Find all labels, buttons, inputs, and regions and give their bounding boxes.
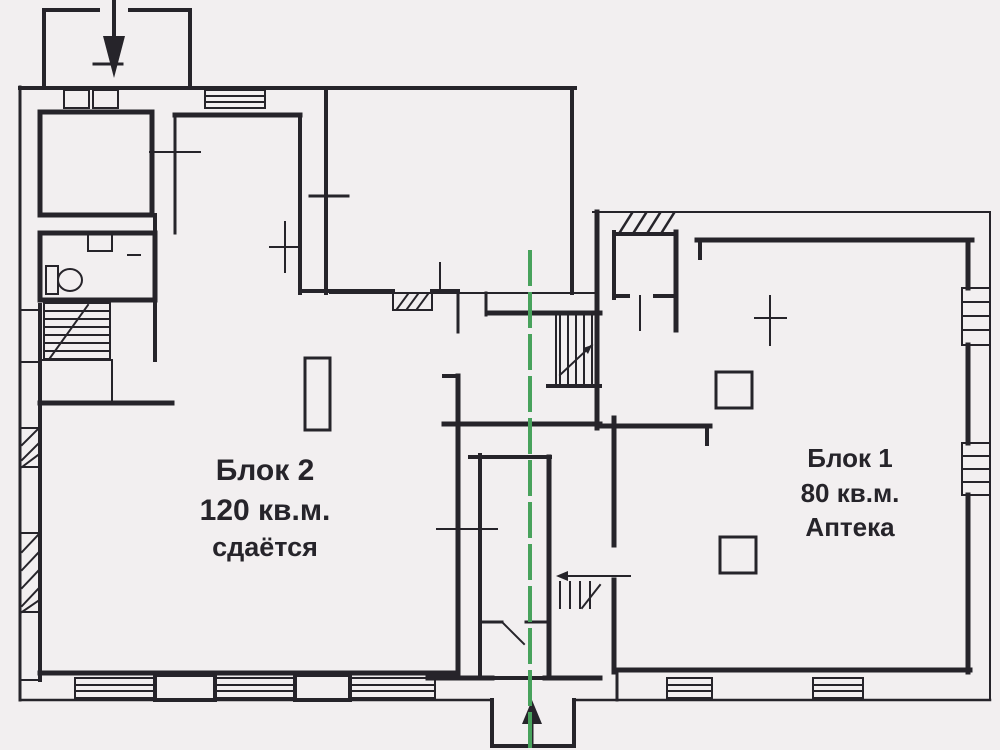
staircase-central-lower [556,571,630,608]
block-1-bottom-windows [667,678,863,698]
central-core [444,424,600,678]
block-1-use: Аптека [750,511,950,544]
entrance-arrow-top-icon [103,0,125,78]
top-window [205,90,265,108]
top-center-room [175,88,600,430]
bottom-entrance-vestibule [428,678,600,746]
floor-plan-canvas: Блок 2 120 кв.м. сдаётся Блок 1 80 кв.м.… [0,0,1000,750]
staircase-left [44,303,110,360]
block-2-area: 120 кв.м. [150,492,380,530]
wall-hatch-opening [393,293,432,310]
block-1-label: Блок 1 80 кв.м. Аптека [750,440,950,546]
block-1-title: Блок 1 [750,442,950,475]
room-top-left [40,112,300,272]
block-1-tambour [614,232,676,330]
top-wall [20,88,575,108]
block-1-entry-hatch [620,213,674,232]
block-1-area: 80 кв.м. [750,477,950,510]
left-wall-hatch [22,429,38,612]
toilet-icon [46,266,82,294]
floor-plan-drawing [0,0,1000,750]
block-2-label: Блок 2 120 кв.м. сдаётся [150,450,380,567]
block-2-status: сдаётся [150,531,380,565]
staircase-central-upper [548,313,600,386]
block-2-bottom-windows [20,675,492,700]
block-2-title: Блок 2 [150,452,380,490]
